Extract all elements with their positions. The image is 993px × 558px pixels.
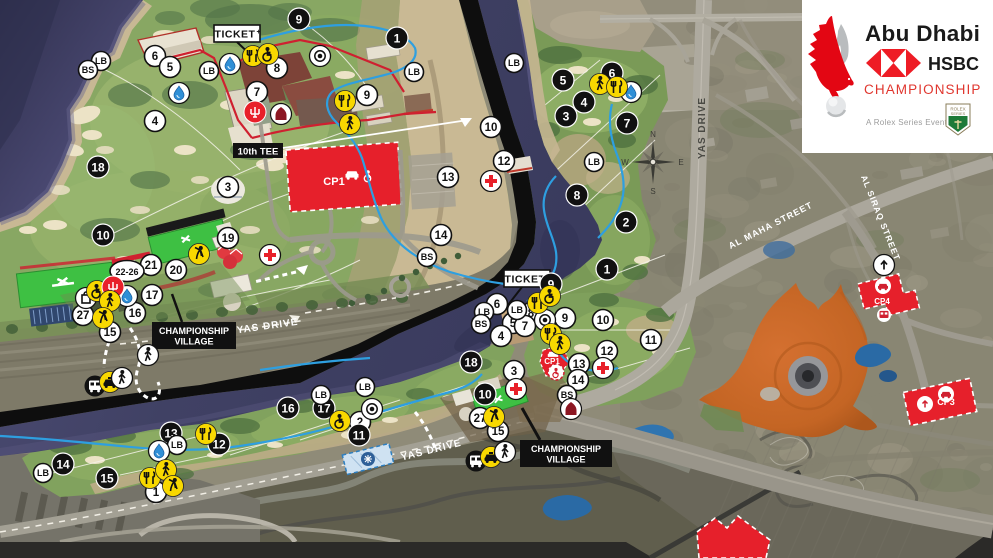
- svg-text:HSBC: HSBC: [928, 54, 979, 74]
- svg-text:S: S: [650, 187, 655, 196]
- svg-text:6: 6: [494, 299, 500, 311]
- svg-text:LB: LB: [95, 56, 107, 66]
- svg-text:11: 11: [645, 335, 658, 347]
- svg-text:14: 14: [56, 457, 70, 471]
- svg-text:17: 17: [146, 290, 159, 302]
- svg-text:16: 16: [129, 308, 142, 320]
- svg-text:+: +: [257, 29, 261, 36]
- svg-text:22-26: 22-26: [115, 267, 138, 277]
- svg-text:11: 11: [353, 428, 366, 442]
- svg-text:CP1: CP1: [323, 176, 344, 188]
- svg-text:CP4: CP4: [874, 297, 890, 306]
- svg-text:2: 2: [623, 215, 630, 229]
- svg-text:BS: BS: [421, 252, 434, 262]
- svg-text:8: 8: [574, 188, 581, 202]
- svg-text:3: 3: [225, 182, 231, 194]
- svg-text:12: 12: [601, 346, 614, 358]
- svg-text:3: 3: [511, 366, 517, 378]
- svg-text:CHAMPIONSHIP: CHAMPIONSHIP: [159, 326, 229, 336]
- svg-text:9: 9: [562, 313, 568, 325]
- svg-text:9: 9: [296, 12, 303, 26]
- svg-text:4: 4: [498, 331, 505, 343]
- svg-text:VILLAGE: VILLAGE: [174, 337, 213, 347]
- svg-text:16: 16: [281, 401, 295, 415]
- svg-text:N: N: [650, 130, 656, 139]
- svg-text:LB: LB: [359, 382, 371, 392]
- svg-text:21: 21: [145, 260, 158, 272]
- svg-text:LB: LB: [203, 66, 215, 76]
- svg-text:10th TEE: 10th TEE: [238, 147, 279, 158]
- svg-text:LB: LB: [588, 157, 600, 167]
- svg-text:YAS DRIVE: YAS DRIVE: [697, 97, 708, 159]
- svg-text:CHAMPIONSHIP: CHAMPIONSHIP: [531, 444, 601, 454]
- svg-text:10: 10: [478, 387, 492, 401]
- svg-text:8: 8: [274, 63, 281, 75]
- svg-text:3: 3: [563, 109, 570, 123]
- svg-text:5: 5: [167, 62, 174, 74]
- svg-text:Abu Dhabi: Abu Dhabi: [865, 21, 980, 46]
- svg-text:9: 9: [364, 90, 370, 102]
- svg-text:VILLAGE: VILLAGE: [546, 455, 585, 465]
- svg-text:18: 18: [91, 160, 105, 174]
- svg-text:4: 4: [152, 116, 159, 128]
- svg-text:TICKET: TICKET: [505, 274, 546, 286]
- svg-text:10: 10: [485, 122, 498, 134]
- svg-text:15: 15: [104, 327, 117, 339]
- svg-text:1: 1: [153, 487, 160, 499]
- svg-text:13: 13: [442, 172, 455, 184]
- svg-text:14: 14: [435, 230, 448, 242]
- svg-text:18: 18: [464, 355, 478, 369]
- svg-text:E: E: [678, 158, 683, 167]
- svg-text:6: 6: [152, 51, 158, 63]
- svg-text:LB: LB: [511, 305, 523, 315]
- svg-text:BS: BS: [82, 65, 95, 75]
- svg-text:5: 5: [560, 73, 567, 87]
- svg-text:7: 7: [624, 116, 631, 130]
- svg-text:LB: LB: [171, 440, 183, 450]
- svg-text:14: 14: [572, 375, 585, 387]
- svg-text:12: 12: [498, 156, 511, 168]
- svg-text:1: 1: [394, 31, 401, 45]
- svg-text:LB: LB: [37, 468, 49, 478]
- svg-text:15: 15: [492, 426, 505, 438]
- svg-text:A Rolex Series Event: A Rolex Series Event: [866, 118, 948, 127]
- svg-text:BS: BS: [475, 319, 488, 329]
- svg-text:10: 10: [597, 315, 610, 327]
- svg-text:7: 7: [522, 321, 528, 333]
- svg-text:W: W: [621, 158, 629, 167]
- svg-text:CHAMPIONSHIP: CHAMPIONSHIP: [864, 82, 981, 97]
- svg-text:SERIES: SERIES: [951, 111, 966, 116]
- svg-text:27: 27: [77, 310, 90, 322]
- svg-text:19: 19: [222, 233, 235, 245]
- svg-text:15: 15: [100, 471, 114, 485]
- svg-text:4: 4: [581, 95, 588, 109]
- svg-text:7: 7: [254, 87, 260, 99]
- svg-text:TICKET: TICKET: [215, 29, 256, 41]
- svg-text:LB: LB: [315, 390, 327, 400]
- svg-text:LB: LB: [408, 67, 420, 77]
- svg-text:10: 10: [96, 228, 110, 242]
- svg-text:1: 1: [604, 262, 611, 276]
- svg-text:20: 20: [170, 265, 183, 277]
- svg-text:LB: LB: [508, 58, 520, 68]
